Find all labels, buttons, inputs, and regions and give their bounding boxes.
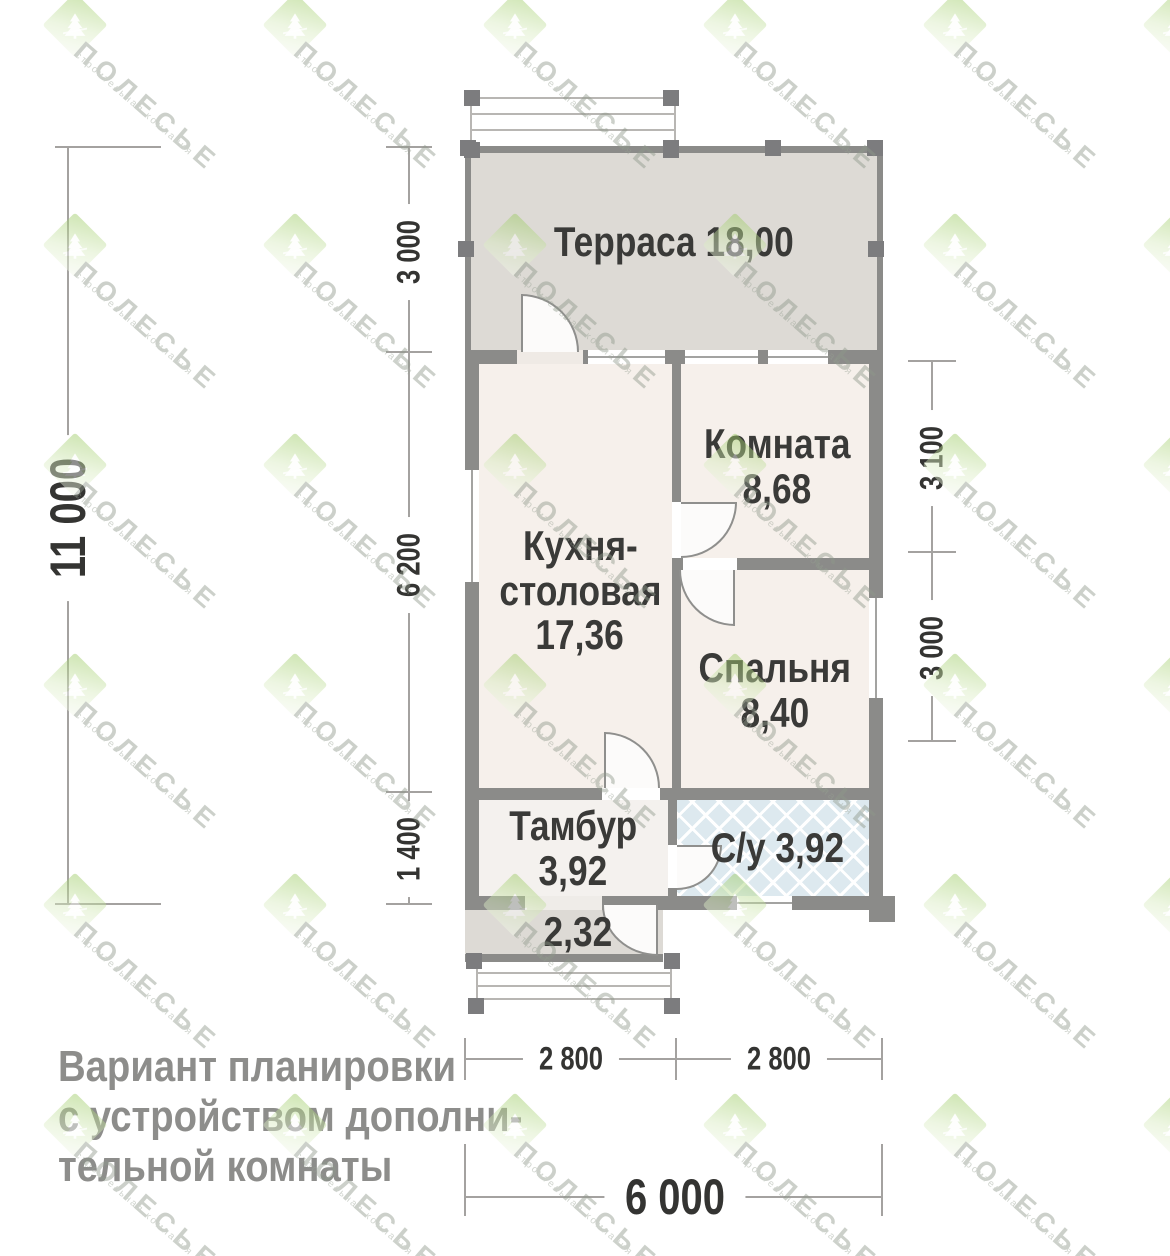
watermark-diamond bbox=[262, 872, 327, 937]
spruce-tree-icon bbox=[58, 890, 92, 922]
watermark: ПОЛЕСЬЕстроительная компания bbox=[1152, 222, 1170, 422]
watermark-tagline-text: строительная компания bbox=[953, 50, 1075, 159]
terrace-post bbox=[765, 140, 781, 156]
watermark-diamond bbox=[1142, 872, 1170, 937]
porch-label: 2,32 bbox=[500, 910, 655, 955]
watermark-tagline-text: строительная компания bbox=[293, 50, 415, 159]
step-post bbox=[664, 998, 680, 1014]
dim-tick bbox=[881, 1038, 883, 1080]
dim-value: 2 800 bbox=[539, 1041, 603, 1078]
dim-bottom-left-text: 2 800 bbox=[523, 1039, 619, 1080]
watermark: ПОЛЕСЬЕстроительная компания bbox=[1152, 662, 1170, 862]
spruce-tree-icon bbox=[718, 10, 752, 42]
bedroom-label: Спальня 8,40 bbox=[660, 646, 890, 735]
spruce-tree-icon bbox=[1158, 230, 1170, 262]
dim-tick bbox=[386, 903, 432, 905]
watermark: ПОЛЕСЬЕстроительная компания bbox=[1152, 882, 1170, 1082]
watermark: ПОЛЕСЬЕстроительная компания bbox=[1152, 442, 1170, 642]
spruce-tree-icon bbox=[498, 10, 532, 42]
watermark: ПОЛЕСЬЕстроительная компания bbox=[272, 442, 492, 642]
watermark-diamond bbox=[1142, 212, 1170, 277]
watermark-tagline-text: строительная компания bbox=[513, 50, 635, 159]
wc-bottom-window bbox=[737, 896, 792, 910]
top-steps-line bbox=[470, 97, 676, 99]
watermark-brand-text: ПОЛЕСЬЕ bbox=[68, 696, 226, 839]
terrace-post bbox=[663, 140, 679, 156]
dim-value: 2 800 bbox=[747, 1041, 811, 1078]
plan-caption: Вариант планировки с устройством дополни… bbox=[58, 1042, 518, 1192]
spruce-tree-icon bbox=[278, 230, 312, 262]
step-post bbox=[664, 953, 680, 969]
watermark-diamond bbox=[1142, 1092, 1170, 1157]
step-post bbox=[468, 998, 484, 1014]
watermark-tree bbox=[52, 662, 98, 708]
watermark-tagline-text: строительная компания bbox=[73, 270, 195, 379]
dim-left-total-tick-top bbox=[55, 146, 161, 148]
watermark-tagline-text: строительная компания bbox=[73, 710, 195, 819]
window-pane bbox=[685, 356, 758, 358]
wc-label: С/у 3,92 bbox=[662, 826, 892, 871]
top-steps-line bbox=[470, 129, 676, 131]
watermark-tree bbox=[932, 2, 978, 48]
room-name: Комната bbox=[704, 422, 851, 467]
room-area: 8,40 bbox=[741, 691, 810, 736]
room-area: 18,00 bbox=[706, 218, 794, 265]
window-pane bbox=[588, 356, 665, 358]
dim-tick bbox=[881, 1144, 883, 1216]
watermark-tagline-text: строительная компания bbox=[733, 1150, 855, 1256]
spruce-tree-icon bbox=[58, 10, 92, 42]
watermark-diamond bbox=[1142, 432, 1170, 497]
dim-left-total-text: 11 000 bbox=[37, 435, 99, 601]
watermark-diamond bbox=[482, 0, 547, 58]
terrace-post bbox=[867, 140, 883, 156]
watermark-tree bbox=[272, 2, 318, 48]
terrace-door-opening bbox=[517, 350, 583, 364]
spruce-tree-icon bbox=[278, 670, 312, 702]
watermark: ПОЛЕСЬЕстроительная компания bbox=[272, 662, 492, 862]
dim-value: 6 200 bbox=[391, 533, 428, 597]
room-name: С/у bbox=[710, 824, 765, 871]
watermark-tree bbox=[712, 2, 758, 48]
watermark-tagline-text: строительная компания bbox=[953, 270, 1075, 379]
watermark: ПОЛЕСЬЕстроительная компания bbox=[52, 2, 272, 202]
watermark: ПОЛЕСЬЕстроительная компания bbox=[932, 2, 1152, 202]
watermark-tree bbox=[1152, 882, 1170, 928]
spruce-tree-icon bbox=[938, 230, 972, 262]
dim-tick bbox=[386, 146, 432, 148]
watermark-tree bbox=[1152, 222, 1170, 268]
kitchen-label: Кухня- столовая 17,36 bbox=[460, 524, 700, 658]
porch-steps-line bbox=[478, 998, 670, 1000]
step-post bbox=[464, 90, 480, 106]
watermark-brand-text: ПОЛЕСЬЕ bbox=[948, 36, 1106, 179]
corner-pier bbox=[869, 896, 895, 922]
dim-value: 3 000 bbox=[391, 220, 428, 284]
watermark-tree bbox=[712, 1102, 758, 1148]
watermark-tree bbox=[932, 222, 978, 268]
watermark-brand-text: ПОЛЕСЬЕ bbox=[288, 36, 446, 179]
dim-tick bbox=[908, 551, 956, 553]
watermark-tagline-text: строительная компания bbox=[953, 710, 1075, 819]
dim-value: 3 000 bbox=[914, 616, 951, 680]
watermark-brand-text: ПОЛЕСЬЕ bbox=[948, 916, 1106, 1059]
dim-bottom-total-text: 6 000 bbox=[604, 1166, 745, 1228]
room-bedroom-wall bbox=[737, 558, 883, 570]
spruce-tree-icon bbox=[938, 10, 972, 42]
dim-value: 6 000 bbox=[625, 1168, 725, 1226]
dim-right-room-text: 3 100 bbox=[912, 410, 953, 506]
room-area: 3,92 bbox=[775, 824, 844, 871]
dim-bottom-right-text: 2 800 bbox=[731, 1039, 827, 1080]
room-name: Кухня- bbox=[523, 524, 638, 569]
watermark-tree bbox=[1152, 2, 1170, 48]
tambour-label: Тамбур 3,92 bbox=[470, 804, 676, 893]
spruce-tree-icon bbox=[1158, 10, 1170, 42]
watermark-tree bbox=[272, 662, 318, 708]
porch-steps-line bbox=[478, 972, 670, 974]
window-pane bbox=[768, 356, 828, 358]
watermark-tree bbox=[52, 882, 98, 928]
dim-right-bedroom-text: 3 000 bbox=[912, 600, 953, 696]
room-name: столовая bbox=[499, 569, 661, 614]
watermark-tree bbox=[52, 222, 98, 268]
dim-tick bbox=[386, 791, 432, 793]
watermark-tagline-text: строительная компания bbox=[953, 490, 1075, 599]
watermark-diamond bbox=[42, 0, 107, 58]
spruce-tree-icon bbox=[278, 10, 312, 42]
room-name: Спальня bbox=[699, 646, 851, 691]
watermark: ПОЛЕСЬЕстроительная компания bbox=[932, 222, 1152, 422]
watermark-tagline-text: строительная компания bbox=[733, 930, 855, 1039]
watermark-tree bbox=[272, 222, 318, 268]
dim-value: 3 100 bbox=[914, 426, 951, 490]
spruce-tree-icon bbox=[938, 1110, 972, 1142]
spruce-tree-icon bbox=[718, 1110, 752, 1142]
room-area: 3,92 bbox=[539, 849, 608, 894]
watermark-diamond bbox=[262, 432, 327, 497]
room-area: 17,36 bbox=[536, 613, 624, 658]
tambour-wall bbox=[465, 788, 602, 800]
room-area: 8,68 bbox=[743, 467, 812, 512]
caption-line: тельной комнаты bbox=[58, 1142, 392, 1192]
spruce-tree-icon bbox=[278, 890, 312, 922]
spruce-tree-icon bbox=[1158, 450, 1170, 482]
room-area: 2,32 bbox=[543, 910, 612, 955]
watermark: ПОЛЕСЬЕстроительная компания bbox=[1152, 2, 1170, 202]
watermark-tagline-text: строительная компания bbox=[953, 1150, 1075, 1256]
watermark: ПОЛЕСЬЕстроительная компания bbox=[1152, 1102, 1170, 1256]
watermark-tree bbox=[492, 2, 538, 48]
terrace-label: Терраса 18,00 bbox=[474, 220, 874, 265]
room-name: Терраса bbox=[554, 218, 696, 265]
watermark-diamond bbox=[262, 0, 327, 58]
watermark-diamond bbox=[922, 872, 987, 937]
watermark-diamond bbox=[1142, 0, 1170, 58]
watermark-diamond bbox=[922, 1092, 987, 1157]
watermark-tree bbox=[1152, 1102, 1170, 1148]
watermark-tagline-text: строительная компания bbox=[953, 930, 1075, 1039]
watermark-brand-text: ПОЛЕСЬЕ bbox=[948, 696, 1106, 839]
watermark-tree bbox=[272, 442, 318, 488]
top-steps-line bbox=[470, 113, 676, 115]
watermark-diamond bbox=[262, 652, 327, 717]
watermark-brand-text: ПОЛЕСЬЕ bbox=[68, 916, 226, 1059]
wc-label-text: С/у 3,92 bbox=[710, 826, 843, 871]
spruce-tree-icon bbox=[1158, 670, 1170, 702]
watermark-tree bbox=[1152, 662, 1170, 708]
tambour-wall bbox=[660, 788, 883, 800]
caption-line: Вариант планировки bbox=[58, 1042, 456, 1092]
room-terrace-window-1 bbox=[685, 350, 758, 364]
watermark-tagline-text: строительная компания bbox=[293, 930, 415, 1039]
dim-tick bbox=[908, 360, 956, 362]
watermark: ПОЛЕСЬЕстроительная компания bbox=[932, 442, 1152, 642]
watermark-diamond bbox=[922, 0, 987, 58]
dim-tick bbox=[386, 351, 432, 353]
watermark-brand-text: ПОЛЕСЬЕ bbox=[68, 36, 226, 179]
spruce-tree-icon bbox=[58, 670, 92, 702]
watermark-tagline-text: строительная компания bbox=[733, 50, 855, 159]
spruce-tree-icon bbox=[938, 890, 972, 922]
dim-left-tambour-text: 1 400 bbox=[389, 801, 430, 897]
terrace-label-text: Терраса 18,00 bbox=[554, 220, 794, 265]
dim-left-terrace-text: 3 000 bbox=[389, 204, 430, 300]
watermark-diamond bbox=[702, 1092, 767, 1157]
room-terrace-window-2 bbox=[768, 350, 828, 364]
watermark-tagline-text: строительная компания bbox=[73, 50, 195, 159]
watermark: ПОЛЕСЬЕстроительная компания bbox=[52, 222, 272, 422]
porch-bottom-wall bbox=[465, 954, 663, 962]
watermark-diamond bbox=[42, 872, 107, 937]
watermark-brand-text: ПОЛЕСЬЕ bbox=[68, 256, 226, 399]
dim-left-total-tick-bottom bbox=[55, 903, 161, 905]
window-pane bbox=[737, 902, 792, 904]
terrace-post bbox=[458, 241, 474, 257]
dim-value: 11 000 bbox=[39, 458, 97, 578]
spruce-tree-icon bbox=[278, 450, 312, 482]
watermark-brand-text: ПОЛЕСЬЕ bbox=[288, 916, 446, 1059]
step-post bbox=[663, 90, 679, 106]
watermark-tagline-text: строительная компания bbox=[73, 930, 195, 1039]
dim-left-main-text: 6 200 bbox=[389, 517, 430, 613]
terrace-post bbox=[460, 140, 476, 156]
watermark-tree bbox=[52, 2, 98, 48]
watermark-diamond bbox=[922, 212, 987, 277]
porch-steps-line bbox=[478, 985, 670, 987]
watermark: ПОЛЕСЬЕстроительная компания bbox=[932, 662, 1152, 862]
step-post bbox=[466, 953, 482, 969]
watermark-diamond bbox=[42, 652, 107, 717]
dim-value: 1 400 bbox=[391, 817, 428, 881]
floor-plan-canvas: 11 000 3 000 6 200 1 400 3 100 3 000 2 8… bbox=[0, 0, 1170, 1256]
watermark-brand-text: ПОЛЕСЬЕ bbox=[948, 1136, 1106, 1256]
watermark: ПОЛЕСЬЕстроительная компания bbox=[932, 1102, 1152, 1256]
caption-line: с устройством дополни- bbox=[58, 1092, 522, 1142]
watermark-tree bbox=[272, 882, 318, 928]
room-label: Комната 8,68 bbox=[662, 422, 892, 511]
dim-tick bbox=[908, 740, 956, 742]
watermark-diamond bbox=[702, 0, 767, 58]
watermark-tree bbox=[932, 1102, 978, 1148]
watermark: ПОЛЕСЬЕстроительная компания bbox=[52, 662, 272, 862]
room-name: Тамбур bbox=[509, 804, 637, 849]
dim-tick bbox=[675, 1038, 677, 1080]
watermark-tree bbox=[932, 882, 978, 928]
kitchen-terrace-window bbox=[588, 350, 665, 364]
watermark: ПОЛЕСЬЕстроительная компания bbox=[932, 882, 1152, 1082]
watermark-diamond bbox=[262, 212, 327, 277]
watermark: ПОЛЕСЬЕстроительная компания bbox=[272, 2, 492, 202]
watermark-brand-text: ПОЛЕСЬЕ bbox=[948, 256, 1106, 399]
watermark-tree bbox=[1152, 442, 1170, 488]
spruce-tree-icon bbox=[58, 230, 92, 262]
watermark-diamond bbox=[42, 212, 107, 277]
spruce-tree-icon bbox=[1158, 1110, 1170, 1142]
watermark-diamond bbox=[1142, 652, 1170, 717]
watermark-brand-text: ПОЛЕСЬЕ bbox=[948, 476, 1106, 619]
spruce-tree-icon bbox=[1158, 890, 1170, 922]
